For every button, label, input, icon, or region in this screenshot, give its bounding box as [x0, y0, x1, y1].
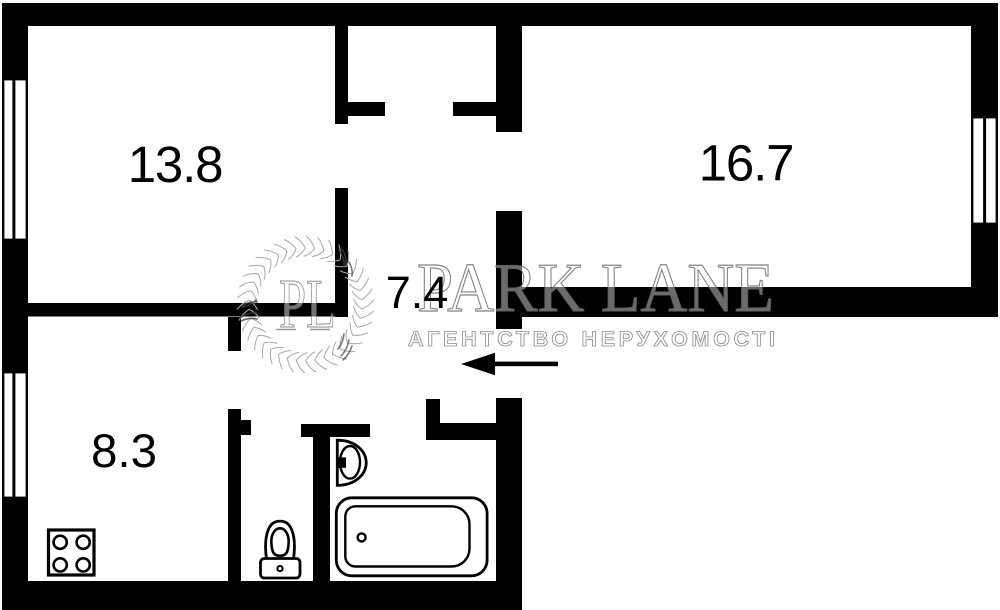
- svg-text:16.7: 16.7: [699, 135, 793, 192]
- svg-text:PL: PL: [279, 266, 336, 343]
- svg-text:8.3: 8.3: [91, 425, 157, 478]
- svg-text:PARK LANE: PARK LANE: [417, 250, 774, 327]
- svg-text:АГЕНТСТВО НЕРУХОМОСТІ: АГЕНТСТВО НЕРУХОМОСТІ: [408, 327, 779, 351]
- svg-text:13.8: 13.8: [128, 136, 222, 193]
- svg-text:7.4: 7.4: [386, 267, 449, 318]
